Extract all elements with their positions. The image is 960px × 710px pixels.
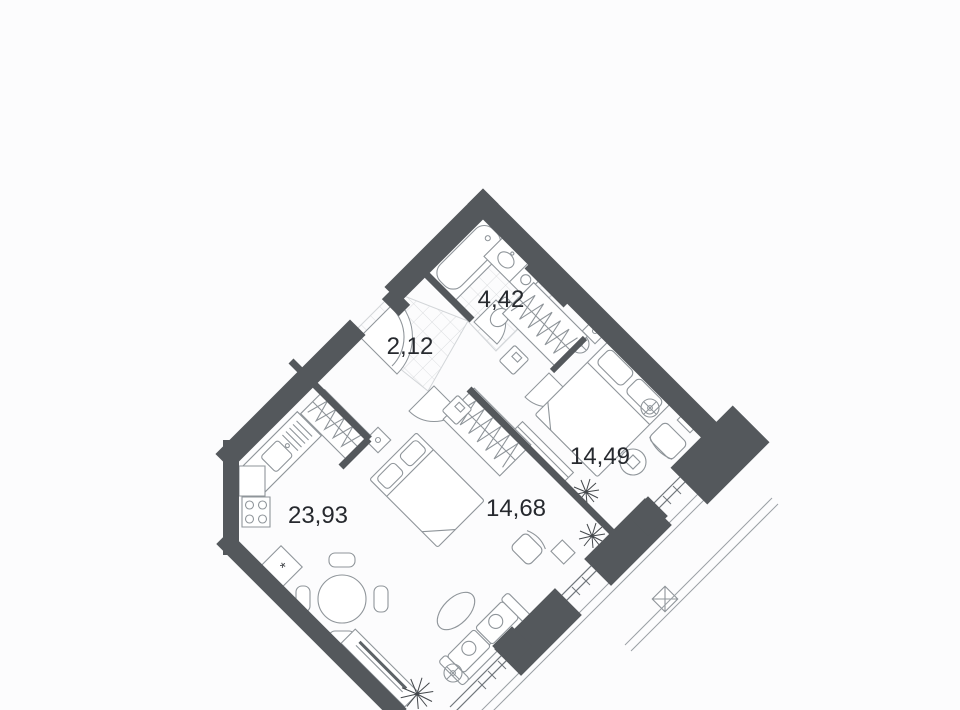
armchair-icon [510,528,547,565]
stove-icon [242,497,270,527]
rug-icon [431,586,482,637]
floor-plan-page: * [0,0,960,710]
counter-tile [239,466,265,496]
room-label-bedroom-middle: 14,68 [486,495,546,523]
armchair-icon [647,421,688,462]
side-table-icon [551,540,575,564]
room-label-kitchen-living-room: 23,93 [288,502,348,530]
room-label-bedroom-right: 14,49 [570,443,630,471]
floor-plan-drawing: * [0,0,960,710]
room-label-hallway: 2,12 [387,333,434,361]
bed-icon [370,433,485,548]
room-label-bathroom: 4,42 [478,286,525,314]
cabinet-icon [499,345,529,375]
